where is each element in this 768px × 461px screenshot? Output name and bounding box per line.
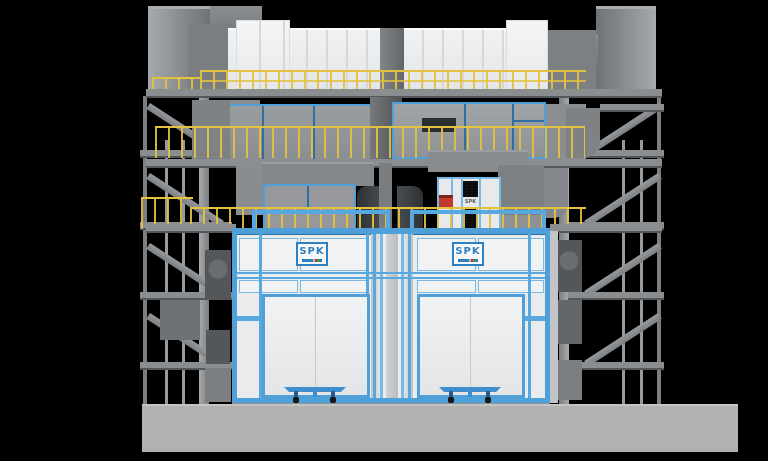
booth-mid-panel [417, 280, 476, 293]
roof-pipe-post [542, 210, 546, 229]
spk-logo-text: SPK [299, 247, 324, 257]
trolley-tab [313, 392, 317, 397]
booth-edge-column-right [545, 228, 550, 403]
cabinet-logo: SPK [463, 199, 478, 206]
junction-mullion [373, 234, 376, 398]
junction-mullion [380, 234, 383, 398]
door-tie-stub [237, 316, 262, 321]
trolley-tab [468, 392, 472, 397]
booth-side-return-right [550, 231, 558, 403]
booth-upper-panel [478, 238, 544, 271]
door-center-seam [315, 297, 316, 395]
booth-door-left [262, 294, 370, 398]
platform-deck-2 [146, 159, 662, 168]
duct-horizontal [262, 162, 374, 186]
door-center-seam [470, 297, 471, 395]
ahu-box-subpanel-line [514, 120, 544, 122]
concrete-base-slab [142, 404, 738, 452]
floor-unit-box [556, 360, 582, 400]
platform-deck-3-right [550, 224, 662, 233]
roof-pipe-frame-right [410, 210, 546, 214]
spk-logo-left: SPK [296, 242, 328, 266]
exhaust-stack-right [596, 6, 656, 97]
booth-mid-panel [478, 280, 544, 293]
exhaust-fan-housing [556, 240, 582, 292]
trolley-wheel [485, 397, 491, 403]
floor-trolley-left [284, 387, 346, 403]
junction-mullion [408, 234, 411, 398]
roof-pipe-post [410, 210, 414, 229]
trolley-wheel [448, 397, 454, 403]
render-canvas: SPK SPK SPK [0, 0, 768, 461]
burner-box [439, 195, 453, 207]
junction-mullion [401, 234, 404, 398]
platform-deck-3-left [146, 224, 236, 233]
roof-pipe-post [252, 210, 256, 229]
cabinet-filter-grille [463, 181, 478, 197]
booth-upper-panel [239, 238, 298, 271]
roof-pipe-post [386, 210, 390, 229]
booth-mid-panel [239, 280, 298, 293]
booth-band-line [232, 272, 550, 274]
booth-band-line [232, 277, 550, 279]
roof-pipe-frame-left [252, 210, 390, 214]
door-tie-stub [525, 316, 545, 321]
booth-center-junction [371, 234, 413, 398]
duct-drop [558, 300, 582, 344]
spk-logo-subtext-strip [302, 259, 322, 262]
spk-logo-text: SPK [455, 247, 480, 257]
stair-landing [568, 292, 664, 300]
junction-shade [386, 234, 398, 398]
floor-trolley-right [439, 387, 501, 403]
booth-mid-panel [300, 280, 368, 293]
trolley-wheel [330, 397, 336, 403]
spk-logo-subtext-strip [458, 259, 478, 262]
platform-deck-1 [146, 89, 662, 98]
stair-landing [568, 362, 664, 370]
stair-landing [600, 104, 664, 112]
trolley-wheel [293, 397, 299, 403]
booth-door-right [417, 294, 525, 398]
spk-logo-right: SPK [452, 242, 484, 266]
